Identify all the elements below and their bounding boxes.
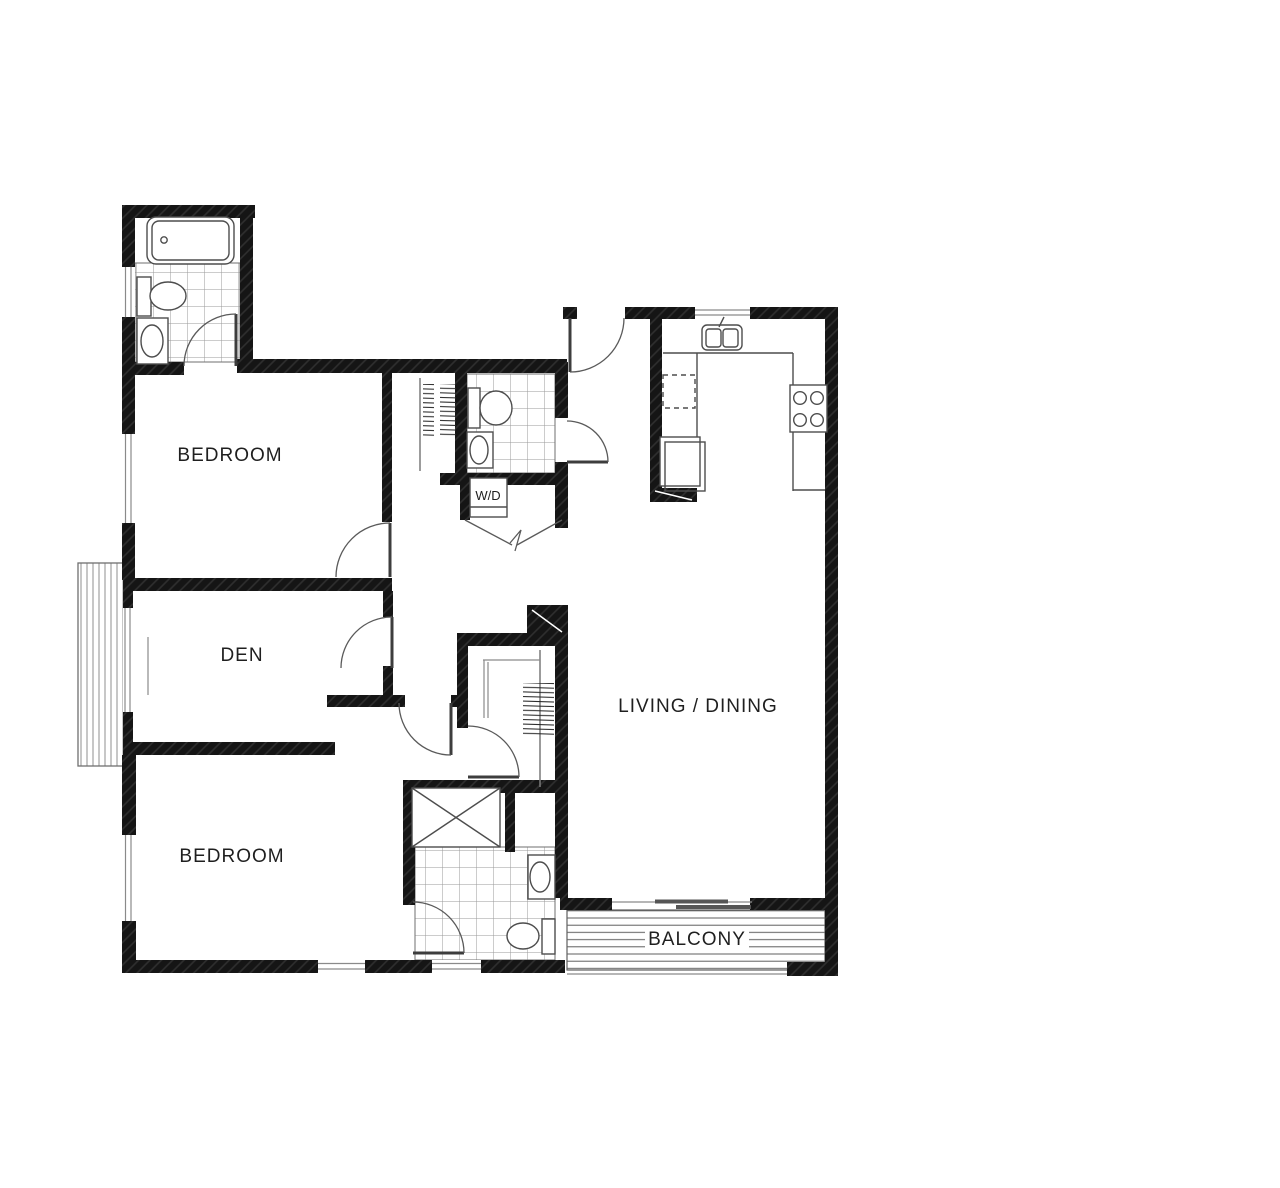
room-bathroom-ensuite	[415, 793, 555, 960]
room-bathroom-top-left	[135, 218, 240, 362]
window-bath-south	[432, 960, 481, 973]
window-bath-west	[122, 267, 135, 317]
label-bedroom1: BEDROOM	[177, 445, 282, 466]
label-den: DEN	[220, 645, 263, 666]
room-kitchen	[662, 318, 825, 490]
reach-in-closet-rod	[420, 378, 456, 471]
window-bedroom2-west	[122, 835, 136, 921]
sliding-glass-door	[612, 900, 752, 910]
bifold-doors-laundry	[465, 520, 562, 551]
room-bathroom-middle	[467, 374, 555, 473]
room-entry-hall	[567, 318, 650, 478]
floor-plan-drawing: BEDROOM DEN BEDROOM LIVING / DINING BALC…	[0, 0, 1280, 1188]
label-living-dining: LIVING / DINING	[618, 696, 778, 717]
window-kitchen-north	[695, 307, 750, 319]
label-washer-dryer: W/D	[475, 488, 500, 503]
floor-plan-page: BEDROOM DEN BEDROOM LIVING / DINING BALC…	[0, 0, 1280, 1188]
room-bedroom1	[137, 373, 382, 578]
room-walk-in-closet	[468, 646, 555, 780]
window-bedroom1-west	[122, 434, 135, 523]
window-den-west	[123, 608, 133, 712]
room-den	[137, 591, 383, 742]
label-bedroom2: BEDROOM	[179, 846, 284, 867]
label-balcony: BALCONY	[648, 929, 746, 950]
window-bedroom2-south	[318, 960, 365, 973]
door-bedroom2	[399, 703, 451, 755]
